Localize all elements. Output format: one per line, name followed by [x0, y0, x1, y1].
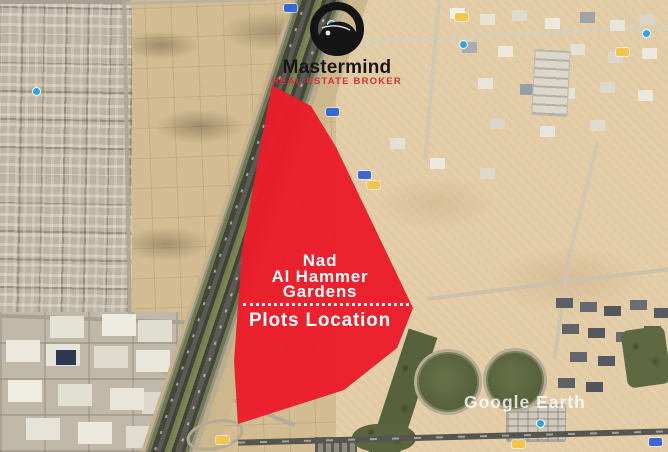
brand-logo: [306, 0, 368, 60]
map-poi-icon: [642, 29, 651, 38]
dark-building: [56, 350, 76, 365]
road: [0, 0, 130, 4]
residential-area-left: [0, 0, 132, 316]
falcon-eye: [326, 31, 331, 36]
brand-name: Mastermind: [262, 58, 412, 78]
road-badge-icon: [512, 440, 525, 448]
road-badge-icon: [326, 108, 339, 116]
map-poi-icon: [536, 419, 545, 428]
brand-tagline: REAL ESTATE BROKER: [262, 76, 412, 87]
road-badge-icon: [358, 171, 371, 179]
road-badge-icon: [649, 438, 662, 446]
map-poi-icon: [32, 87, 41, 96]
road-badge-icon: [216, 436, 229, 444]
road-badge-icon: [367, 181, 380, 189]
road-badge-icon: [284, 4, 297, 12]
road-badge-icon: [616, 48, 629, 56]
google-earth-watermark: Google Earth: [464, 392, 664, 413]
construction-buildings: [556, 298, 573, 308]
road-badge-icon: [455, 13, 468, 21]
satellite-map-image: Nad Al Hammer Gardens Plots Location Mas…: [0, 0, 668, 452]
warehouse-buildings: [6, 340, 40, 362]
large-building: [531, 49, 570, 117]
trees-patch: [620, 325, 668, 389]
map-poi-icon: [459, 40, 468, 49]
